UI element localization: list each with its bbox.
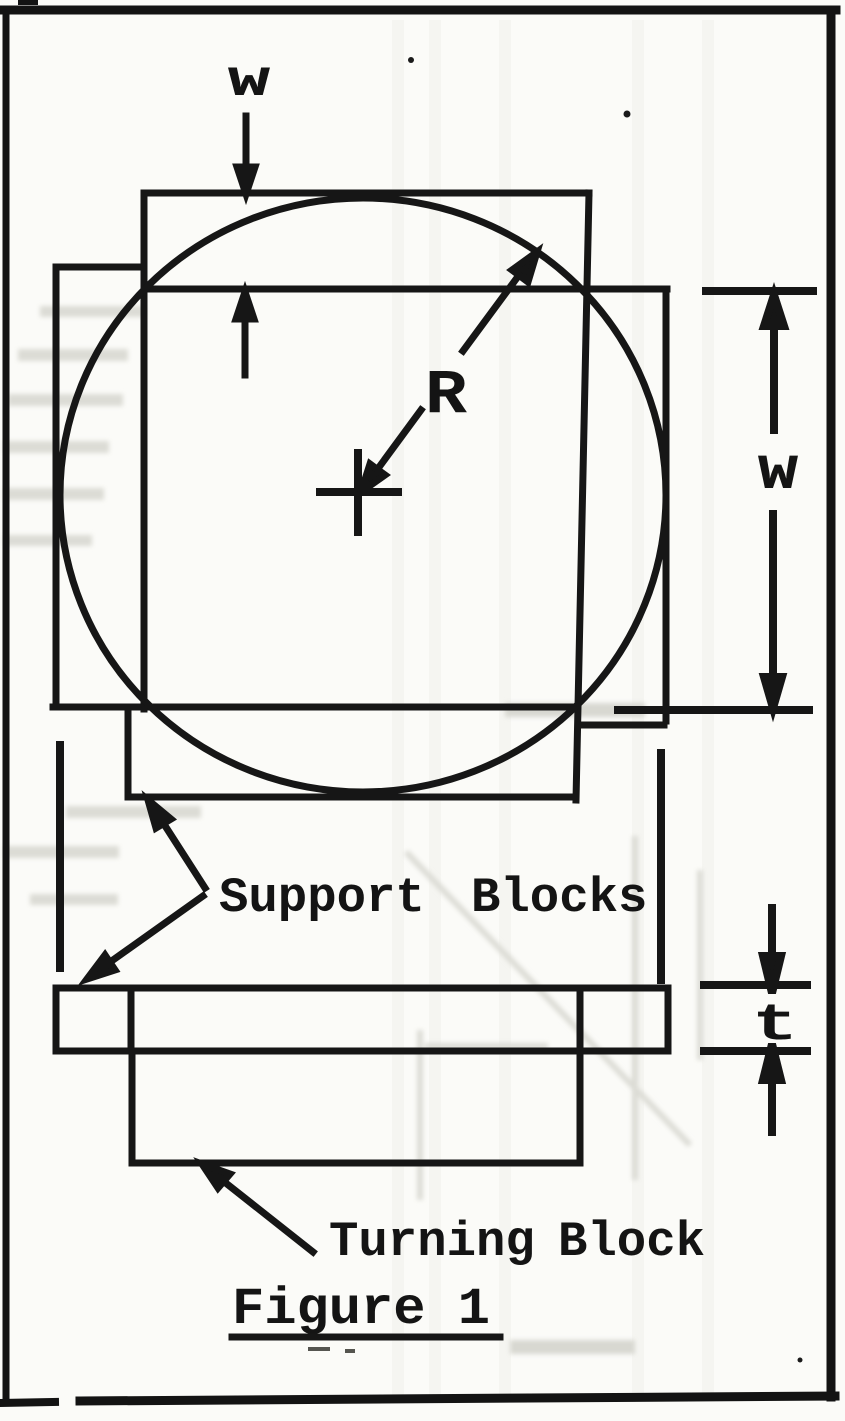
svg-text:Blocks: Blocks bbox=[471, 870, 647, 926]
svg-text:W: W bbox=[758, 447, 799, 503]
svg-text:R: R bbox=[425, 360, 468, 431]
svg-text:Turning: Turning bbox=[329, 1214, 535, 1270]
svg-text:Support: Support bbox=[219, 870, 425, 926]
svg-text:Block: Block bbox=[558, 1214, 705, 1270]
svg-text:Figure 1: Figure 1 bbox=[232, 1280, 490, 1339]
svg-text:W: W bbox=[228, 60, 271, 108]
